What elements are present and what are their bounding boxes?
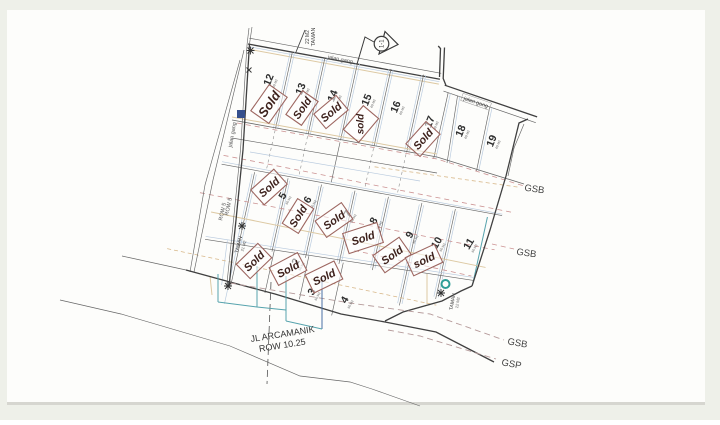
svg-text:TAMAN: TAMAN xyxy=(311,28,317,47)
svg-text:1-1: 1-1 xyxy=(380,39,386,48)
svg-text:22 M2: 22 M2 xyxy=(305,30,311,44)
svg-text:sold: sold xyxy=(356,113,367,134)
